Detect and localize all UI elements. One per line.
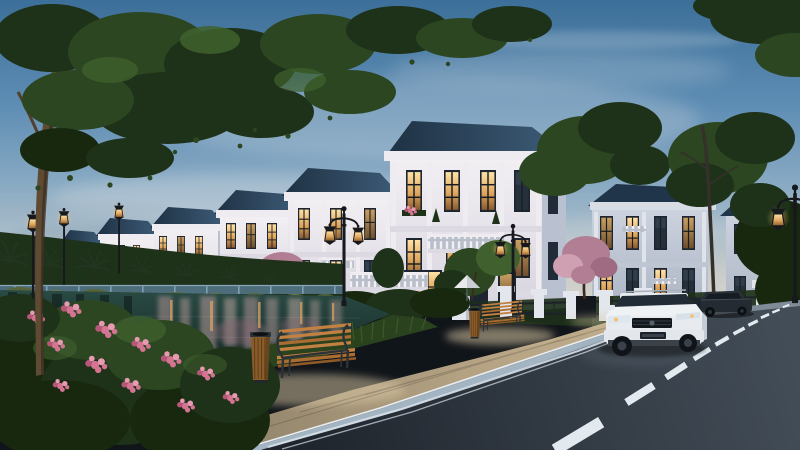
- rendering-canvas: Lakeside villa street at dusk — architec…: [0, 0, 800, 450]
- trash-bin-2: [468, 308, 481, 339]
- trash-bin-1: [250, 332, 271, 383]
- gate: [576, 296, 596, 318]
- villa-dusk-scene: [0, 0, 800, 450]
- suv-mirror: [609, 305, 615, 310]
- balconette: [622, 226, 646, 232]
- balconette: [652, 278, 676, 284]
